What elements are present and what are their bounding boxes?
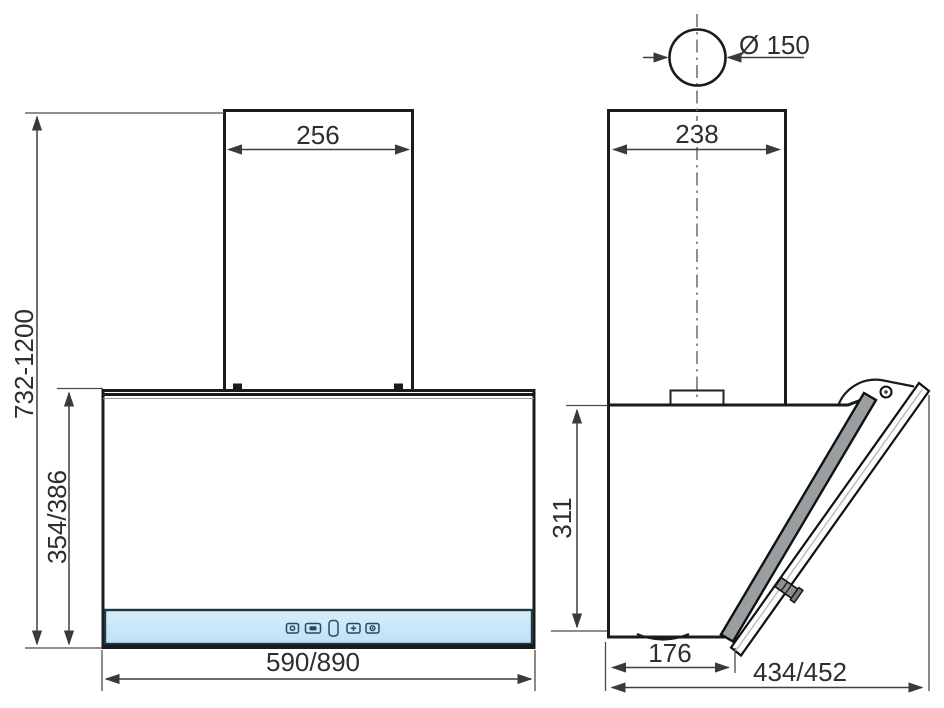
dim-label-chimney-depth: 238 — [675, 119, 718, 149]
hood-dimension-drawing: 256 238 Ø 150 732-1200 354/386 311 590/8… — [0, 0, 944, 708]
drawing-canvas: 256 238 Ø 150 732-1200 354/386 311 590/8… — [0, 0, 944, 708]
front-chimney-duct — [225, 111, 413, 391]
glass-thickness-line — [736, 389, 923, 651]
control-panel-strip — [105, 610, 532, 644]
hinge-pivot-pin — [884, 390, 887, 393]
dim-label-duct-diameter: Ø 150 — [739, 30, 810, 60]
front-view — [103, 111, 534, 648]
dim-label-glass-height: 354/386 — [42, 470, 72, 564]
dim-label-total-depth: 434/452 — [753, 657, 847, 687]
inclined-face-panel — [721, 393, 876, 642]
side-view — [609, 14, 930, 656]
dim-label-body-width: 590/890 — [266, 647, 360, 677]
dim-label-side-height: 311 — [547, 497, 577, 538]
dim-label-bottom-depth: 176 — [648, 638, 691, 668]
duct-connector — [671, 391, 724, 405]
dim-label-chimney-width: 256 — [296, 120, 339, 150]
dim-label-total-height: 732-1200 — [9, 309, 39, 419]
